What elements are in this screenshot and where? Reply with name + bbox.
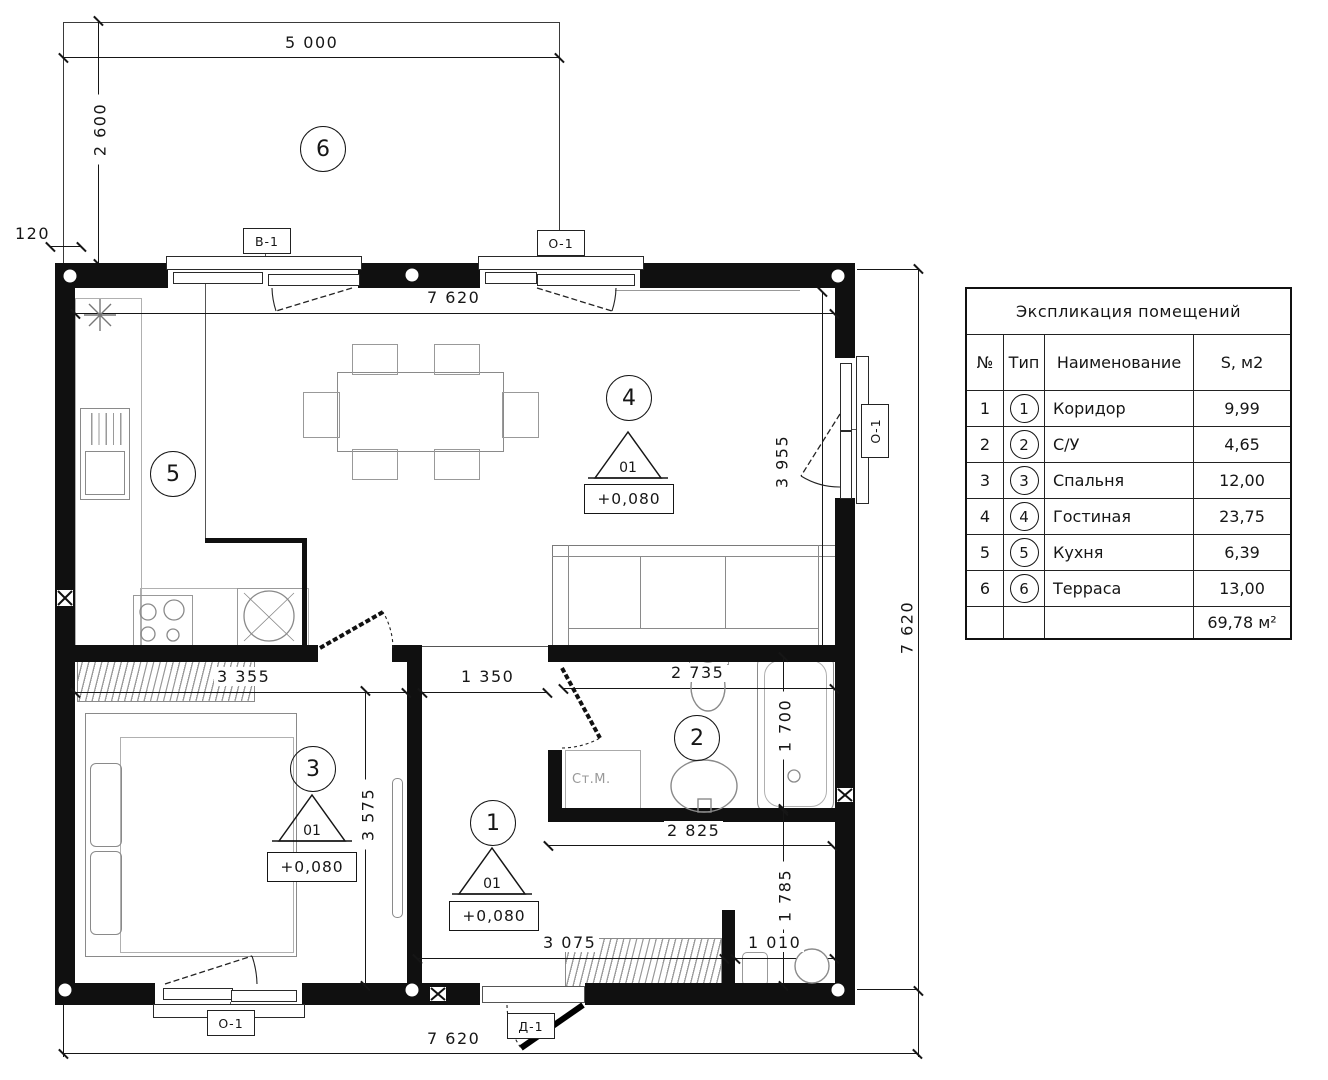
tag-window-o1-right: О-1: [861, 404, 889, 458]
door-swing-bedroom-icon: [320, 612, 393, 648]
floor-plan-sheet: Ст.М.: [0, 0, 1328, 1080]
dim-terrace-depth: 2 600: [91, 95, 110, 165]
room-number-bedroom: 3: [290, 746, 336, 792]
tag-window-v1: В-1: [243, 228, 291, 254]
window-swing-v1-icon: [272, 288, 352, 311]
dim-corr-height: 1 785: [776, 862, 795, 930]
door-swing-bathroom-icon: [562, 668, 600, 748]
dim-terrace-width: 5 000: [282, 33, 341, 52]
floor-mark-corridor: 01: [483, 876, 501, 892]
tag-window-o1-top: О-1: [537, 230, 585, 256]
tag-window-o1-bottom: О-1: [207, 1010, 255, 1036]
dim-living-height: 3 955: [773, 427, 792, 497]
window-swing-o1-right-icon: [801, 414, 840, 487]
plan-annotations: 01 01 01: [0, 0, 1328, 1080]
dim-bottom-total: 7 620: [424, 1029, 483, 1048]
dim-bath-bottom: 2 825: [664, 821, 723, 840]
room-number-living: 4: [606, 375, 652, 421]
dim-corridor-pass: 1 350: [458, 667, 517, 686]
room-number-terrace: 6: [300, 126, 346, 172]
dim-wall-offset: 120: [12, 224, 53, 243]
dim-bath-width: 2 735: [668, 663, 727, 682]
bathtub-drain-icon: [788, 770, 800, 782]
dim-corr-width: 3 075: [540, 933, 599, 952]
water-heater-icon: [795, 949, 829, 983]
dim-tub-length: 1 700: [776, 692, 795, 760]
elevation-box-corridor: +0,080: [449, 901, 539, 931]
wall-node-dots: [59, 269, 845, 997]
dim-bedroom-height: 3 575: [359, 780, 378, 850]
lamp-icon: [84, 299, 116, 331]
room-number-corridor: 1: [470, 800, 516, 846]
wall-joint-x-icon: [57, 590, 853, 1001]
dim-right-total: 7 620: [898, 593, 917, 663]
kitchen-sink-icon: [244, 591, 294, 641]
tag-door-d1: Д-1: [507, 1013, 555, 1039]
dim-niche-width: 1 010: [745, 933, 804, 952]
elevation-box-bedroom: +0,080: [267, 852, 357, 882]
room-number-kitchen: 5: [150, 451, 196, 497]
floor-mark-bedroom: 01: [303, 823, 321, 839]
dim-bedroom-width: 3 355: [214, 667, 273, 686]
elevation-box-living: +0,080: [584, 484, 674, 514]
window-swing-o1-top-icon: [537, 288, 616, 311]
floor-mark-living: 01: [619, 460, 637, 476]
dim-top-inner: 7 620: [424, 288, 483, 307]
stove-burners-icon: [140, 600, 184, 641]
room-number-bathroom: 2: [674, 715, 720, 761]
window-swing-o1-bottom-icon: [165, 956, 257, 984]
bath-sink-icon: [671, 760, 737, 812]
